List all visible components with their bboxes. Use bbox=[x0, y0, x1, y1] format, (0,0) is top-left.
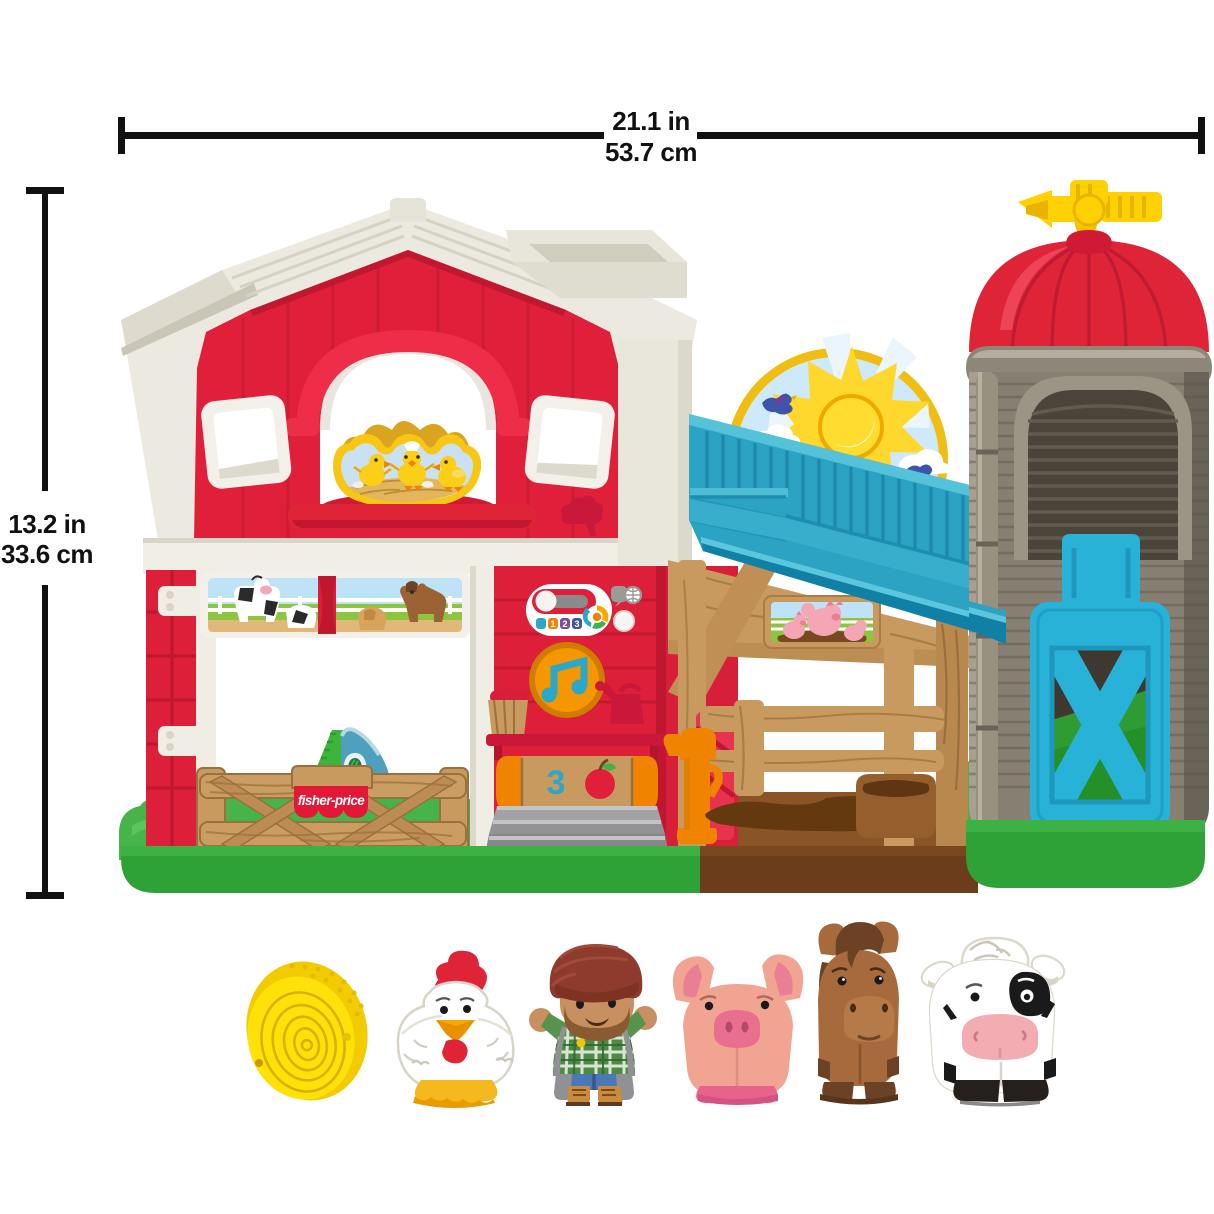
svg-text:fisher-price: fisher-price bbox=[298, 793, 365, 808]
svg-text:33.6 cm: 33.6 cm bbox=[1, 539, 93, 569]
svg-text:2: 2 bbox=[562, 619, 567, 629]
svg-text:21.1 in: 21.1 in bbox=[612, 106, 689, 136]
svg-text:1: 1 bbox=[550, 619, 555, 629]
svg-text:3: 3 bbox=[574, 619, 579, 629]
svg-text:53.7 cm: 53.7 cm bbox=[605, 137, 697, 167]
svg-text:13.2 in: 13.2 in bbox=[8, 509, 85, 539]
svg-text:3: 3 bbox=[547, 764, 566, 802]
